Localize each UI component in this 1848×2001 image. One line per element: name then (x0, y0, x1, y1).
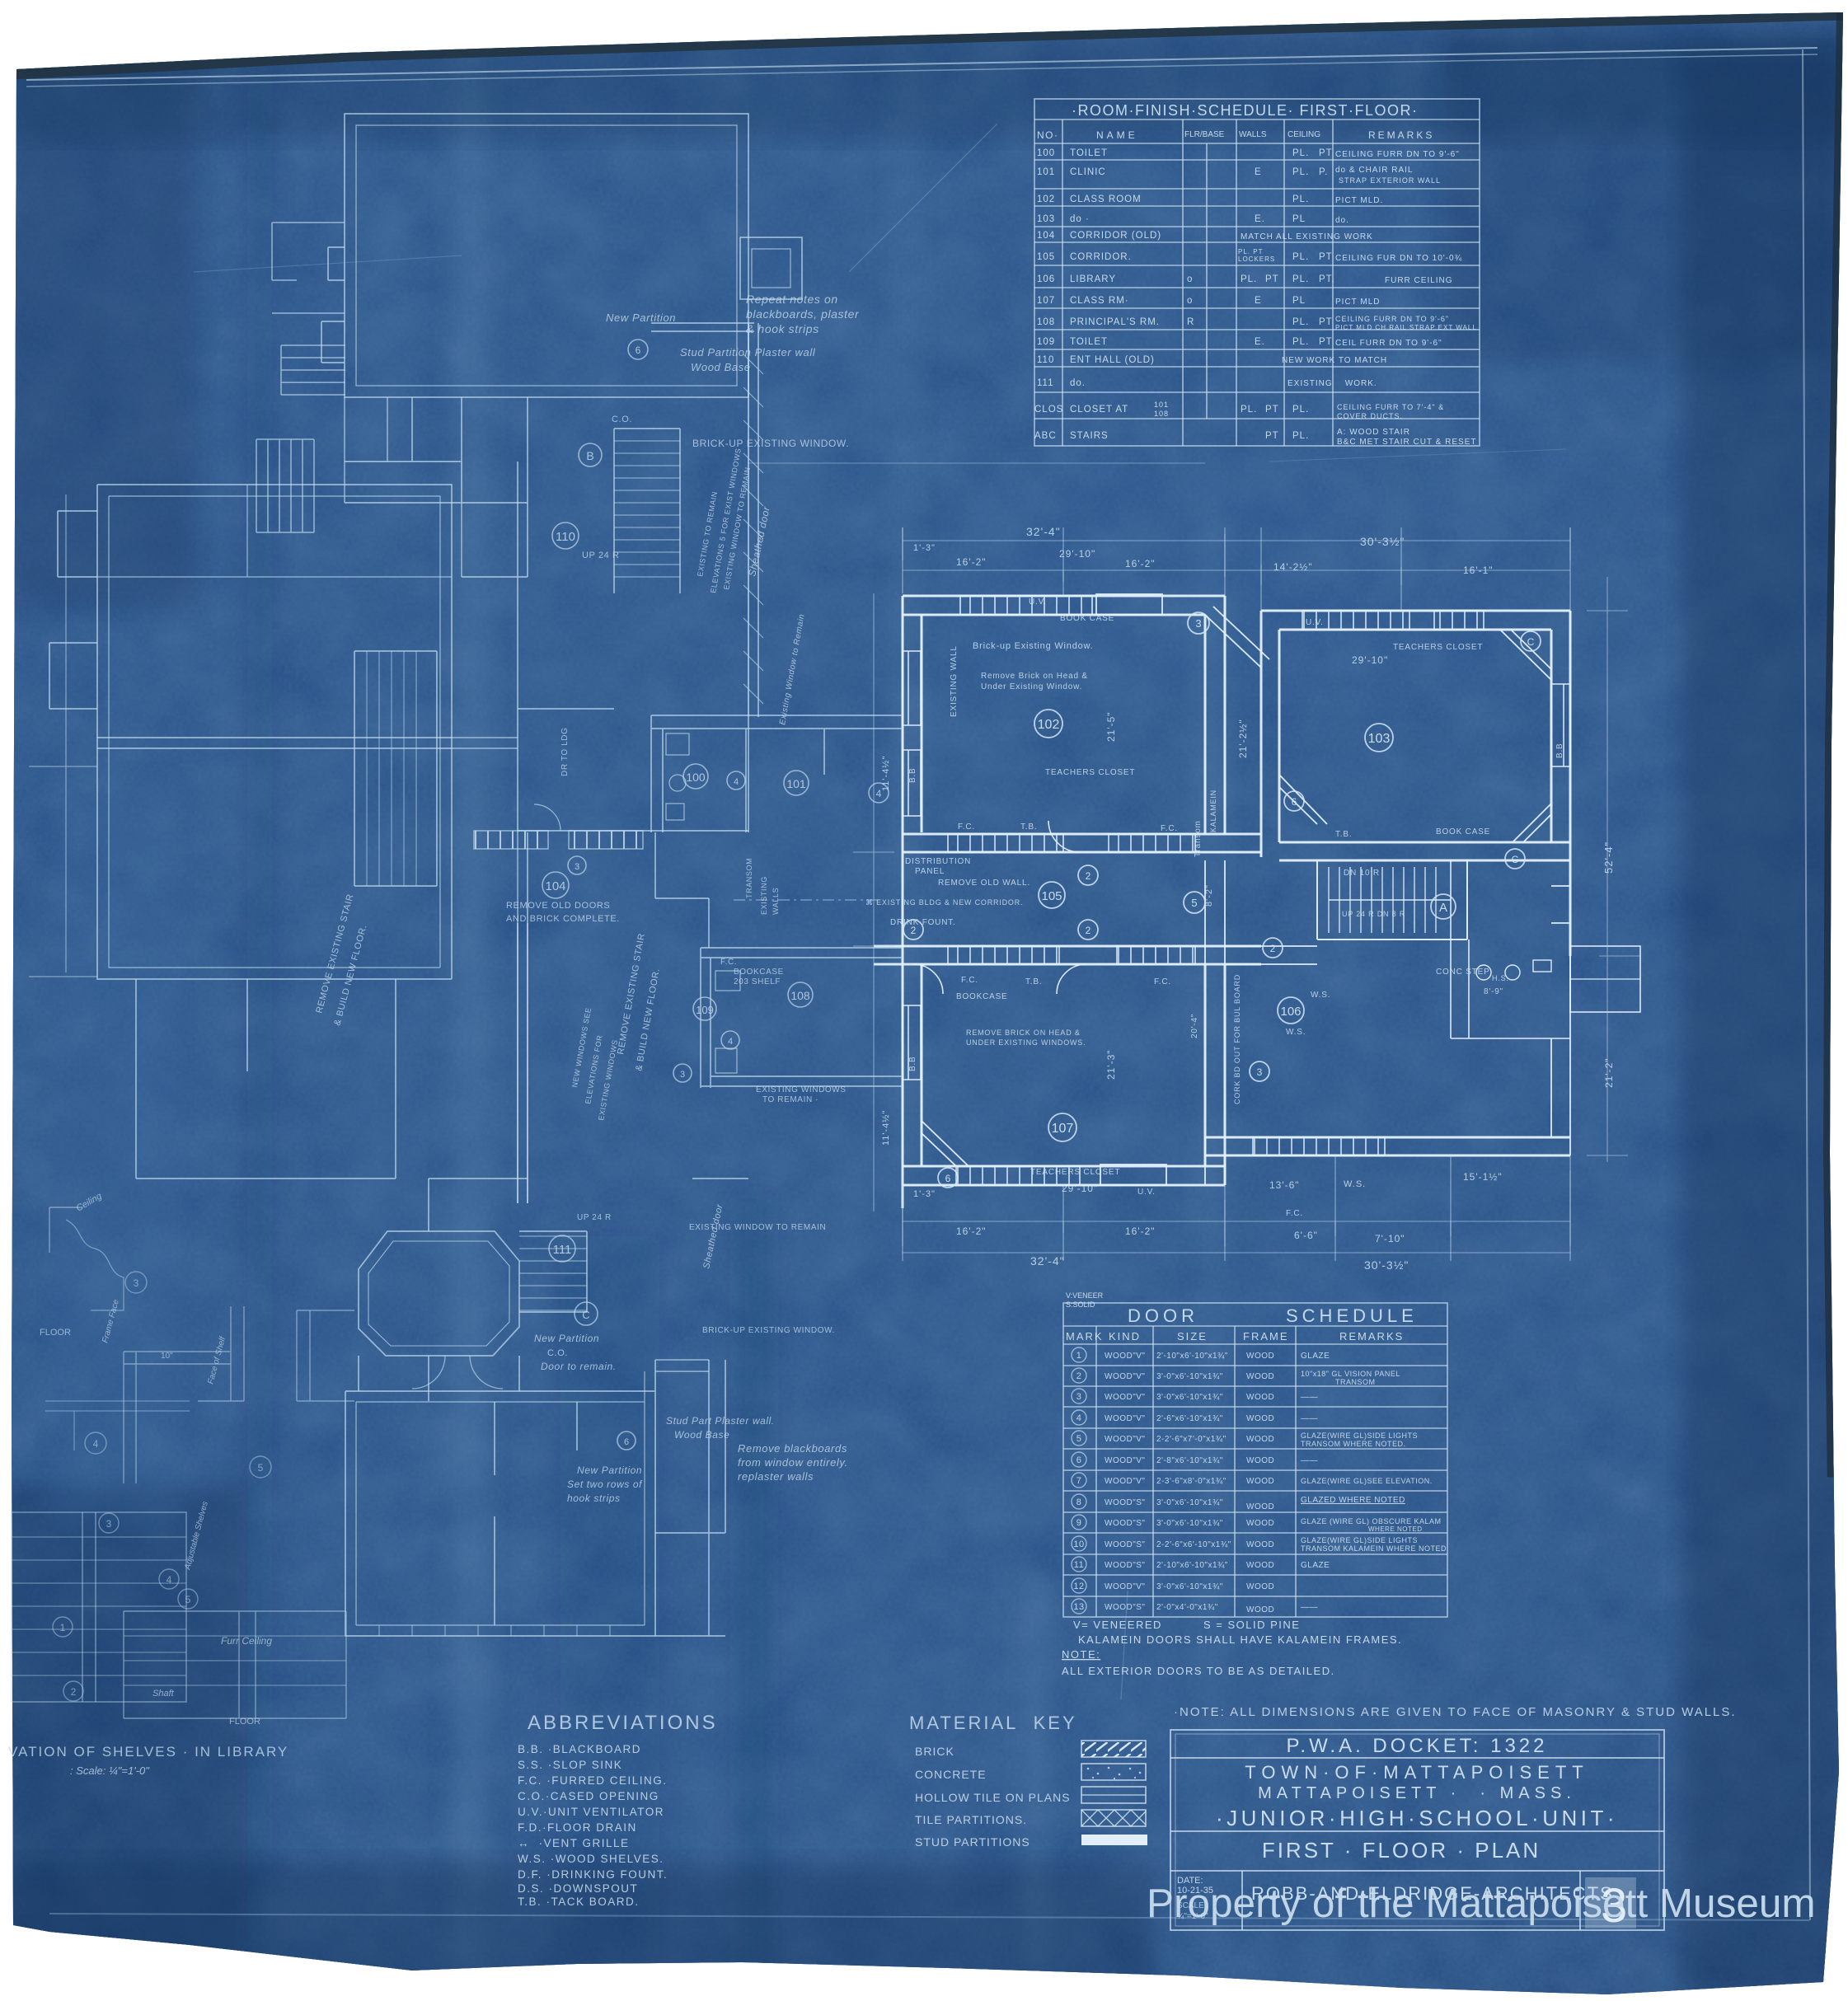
svg-text:E: E (1255, 167, 1262, 177)
svg-text:E: E (1255, 296, 1262, 306)
svg-text:H.S.: H.S. (1492, 974, 1509, 982)
svg-text:Stud Part Plaster wall.: Stud Part Plaster wall. (666, 1415, 775, 1427)
svg-text:LIBRARY: LIBRARY (1070, 274, 1116, 284)
svg-text:NOTE:: NOTE: (1062, 1648, 1100, 1661)
svg-text:PICT MLD CH RAIL STRAP EXT WAL: PICT MLD CH RAIL STRAP EXT WALL (1335, 324, 1477, 331)
svg-text:14'-2½": 14'-2½" (1273, 561, 1313, 573)
svg-text:W.S. ·WOOD SHELVES.: W.S. ·WOOD SHELVES. (518, 1853, 664, 1865)
svg-text:F.C.: F.C. (1154, 977, 1171, 986)
svg-text:CORRIDOR.: CORRIDOR. (1070, 252, 1132, 262)
svg-text:GLAZED WHERE NOTED: GLAZED WHERE NOTED (1301, 1496, 1405, 1505)
svg-text:4: 4 (93, 1438, 99, 1450)
svg-text:13: 13 (1073, 1602, 1084, 1612)
svg-text:2'-10"x6'-10"x1¾": 2'-10"x6'-10"x1¾" (1156, 1352, 1228, 1361)
svg-text:Wood Base: Wood Base (674, 1429, 729, 1441)
svg-text:6: 6 (1292, 796, 1297, 808)
svg-text:4: 4 (876, 788, 882, 799)
svg-text:WOOD: WOOD (1246, 1393, 1274, 1402)
svg-text:FURR CEILING: FURR CEILING (1385, 276, 1453, 285)
svg-text:PL.: PL. (1241, 274, 1257, 284)
svg-text:TEACHERS CLOSET: TEACHERS CLOSET (1393, 643, 1483, 652)
svg-text:20'-4": 20'-4" (1190, 1014, 1199, 1038)
svg-text:ABBREVIATIONS: ABBREVIATIONS (528, 1712, 718, 1734)
svg-text:PICT MLD: PICT MLD (1335, 298, 1381, 307)
svg-text:110: 110 (556, 530, 575, 544)
svg-text:V= VENEERED: V= VENEERED (1073, 1619, 1162, 1631)
svg-text:5: 5 (1076, 1434, 1082, 1444)
svg-text:D.S. ·DOWNSPOUT: D.S. ·DOWNSPOUT (518, 1882, 638, 1895)
svg-text:C: C (582, 1309, 589, 1321)
svg-text:Shaft: Shaft (152, 1689, 175, 1699)
svg-text:5: 5 (1191, 897, 1197, 909)
svg-text:↔ ·VENT GRILLE: ↔ ·VENT GRILLE (518, 1837, 630, 1849)
svg-text:: Scale: ¼"=1'-0": : Scale: ¼"=1'-0" (70, 1764, 150, 1777)
svg-text:5: 5 (185, 1594, 191, 1605)
svg-text:——: —— (1301, 1414, 1318, 1423)
svg-text:GLAZE(WIRE GL)SIDE LIGHTS: GLAZE(WIRE GL)SIDE LIGHTS (1301, 1432, 1418, 1440)
svg-text:B.B: B.B (1555, 743, 1564, 758)
svg-text:CLASS ROOM: CLASS ROOM (1070, 194, 1142, 204)
svg-text:E.: E. (1255, 214, 1265, 224)
svg-text:CONC STEP: CONC STEP (1436, 968, 1490, 977)
svg-text:ABC: ABC (1034, 431, 1057, 441)
svg-text:WOOD"S": WOOD"S" (1105, 1540, 1146, 1549)
svg-text:4: 4 (728, 1037, 733, 1047)
svg-text:6'-6": 6'-6" (1294, 1230, 1318, 1241)
svg-text:32'-4": 32'-4" (1026, 525, 1061, 538)
svg-text:——: —— (1301, 1603, 1318, 1612)
svg-text:8: 8 (1076, 1497, 1082, 1507)
svg-text:3'-0"x6'-10"x1¾": 3'-0"x6'-10"x1¾" (1156, 1519, 1223, 1528)
svg-text:B: B (586, 449, 593, 462)
svg-text:AND BRICK COMPLETE.: AND BRICK COMPLETE. (506, 914, 620, 924)
svg-text:STAIRS: STAIRS (1070, 431, 1109, 441)
svg-text:101: 101 (786, 777, 806, 790)
svg-text:PT: PT (1265, 274, 1279, 284)
svg-text:WOOD"V": WOOD"V" (1105, 1456, 1146, 1465)
svg-text:P.: P. (1319, 167, 1328, 177)
svg-text:2'-10"x6'-10"x1¾": 2'-10"x6'-10"x1¾" (1156, 1561, 1228, 1570)
svg-text:11: 11 (1074, 1560, 1084, 1570)
svg-text:TO REMAIN ·: TO REMAIN · (762, 1095, 818, 1104)
svg-text:F.C.: F.C. (961, 976, 978, 985)
svg-text:6: 6 (1076, 1455, 1082, 1465)
svg-text:PL.: PL. (1292, 337, 1309, 347)
svg-text:CEIL FURR DN TO 9'-6": CEIL FURR DN TO 9'-6" (1335, 339, 1442, 348)
svg-text:101: 101 (1037, 167, 1055, 177)
svg-text:1'-3": 1'-3" (913, 1189, 936, 1199)
svg-text:Under Existing Window.: Under Existing Window. (981, 682, 1082, 691)
svg-text:T.B.: T.B. (1335, 830, 1352, 839)
svg-text:9: 9 (1076, 1518, 1082, 1528)
svg-text:do.: do. (1335, 216, 1349, 225)
svg-text:104: 104 (545, 879, 565, 893)
svg-text:109: 109 (696, 1004, 714, 1016)
svg-text:16'-2": 16'-2" (1125, 558, 1156, 569)
svg-text:·ROOM·FINISH·SCHEDULE· FIRST·F: ·ROOM·FINISH·SCHEDULE· FIRST·FLOOR· (1072, 102, 1419, 119)
svg-text:12: 12 (1073, 1582, 1084, 1591)
svg-text:1: 1 (60, 1622, 66, 1633)
svg-text:F.C.: F.C. (720, 958, 737, 967)
svg-text:Brick-up Existing Window.: Brick-up Existing Window. (973, 641, 1094, 651)
svg-text:DRINK FOUNT.: DRINK FOUNT. (890, 918, 956, 927)
svg-text:111: 111 (1037, 378, 1053, 388)
svg-text:WOOD"S": WOOD"S" (1105, 1561, 1146, 1570)
svg-text:——: —— (1301, 1393, 1318, 1402)
svg-text:PL.: PL. (1292, 252, 1309, 262)
svg-text:U.V.·UNIT VENTILATOR: U.V.·UNIT VENTILATOR (518, 1806, 664, 1818)
svg-text:GLAZE(WIRE GL)SEE ELEVATION.: GLAZE(WIRE GL)SEE ELEVATION. (1301, 1477, 1433, 1485)
svg-text:SIZE: SIZE (1177, 1330, 1208, 1343)
svg-text:Stud Partition Plaster wall: Stud Partition Plaster wall (680, 346, 816, 358)
svg-text:B.B. ·BLACKBOARD: B.B. ·BLACKBOARD (518, 1743, 641, 1755)
svg-text:3: 3 (680, 1070, 685, 1080)
svg-text:21'-2½": 21'-2½" (1237, 719, 1249, 758)
svg-text:PRINCIPAL'S RM.: PRINCIPAL'S RM. (1070, 317, 1160, 327)
svg-text:PL.: PL. (1241, 405, 1257, 415)
svg-text:107: 107 (1037, 296, 1055, 306)
svg-text:C.O.·CASED OPENING: C.O.·CASED OPENING (518, 1790, 659, 1802)
svg-text:BOOK CASE: BOOK CASE (1060, 614, 1114, 623)
svg-text:21'-3": 21'-3" (1105, 1049, 1117, 1080)
svg-text:WOOD"V": WOOD"V" (1105, 1352, 1146, 1361)
svg-text:ENT HALL (OLD): ENT HALL (OLD) (1070, 355, 1155, 365)
svg-text:3: 3 (1257, 1066, 1263, 1078)
svg-text:4: 4 (1076, 1413, 1082, 1423)
svg-text:106: 106 (1037, 274, 1055, 284)
svg-text:A: A (1439, 901, 1447, 915)
svg-text:WALLS: WALLS (772, 888, 780, 915)
svg-text:KALAMEIN DOORS SHALL HAVE KALA: KALAMEIN DOORS SHALL HAVE KALAMEIN FRAME… (1078, 1633, 1402, 1646)
svg-text:21'-5": 21'-5" (1105, 711, 1117, 742)
svg-text:F.C.: F.C. (1286, 1209, 1303, 1218)
svg-text:13'-6": 13'-6" (1269, 1179, 1300, 1191)
svg-text:FIRST · FLOOR · PLAN: FIRST · FLOOR · PLAN (1262, 1838, 1541, 1863)
svg-text:WOOD: WOOD (1246, 1605, 1274, 1614)
svg-text:3: 3 (575, 862, 579, 872)
svg-text:& hook strips: & hook strips (746, 322, 819, 335)
svg-text:from window entirely.: from window entirely. (738, 1456, 848, 1469)
svg-text:2-3'-6"x8'-0"x1¾": 2-3'-6"x8'-0"x1¾" (1156, 1477, 1227, 1486)
svg-text:108: 108 (1154, 410, 1169, 418)
svg-text:103: 103 (1368, 732, 1391, 746)
svg-text:NAME: NAME (1096, 129, 1138, 141)
svg-text:R: R (1187, 317, 1194, 327)
svg-text:UP 24 R DN 8 R: UP 24 R DN 8 R (1342, 910, 1405, 918)
svg-text:101: 101 (1154, 401, 1169, 409)
svg-text:29'-10": 29'-10" (1352, 654, 1388, 666)
svg-text:PT.: PT. (1319, 274, 1335, 284)
svg-text:15'-1½": 15'-1½" (1463, 1171, 1503, 1183)
svg-text:10: 10 (1073, 1539, 1084, 1549)
svg-text:TRANSOM: TRANSOM (745, 858, 753, 898)
svg-text:CLOSET AT: CLOSET AT (1070, 405, 1128, 415)
svg-text:WOOD: WOOD (1246, 1352, 1274, 1361)
svg-text:PL.: PL. (1292, 431, 1309, 441)
svg-text:B.B: B.B (908, 1056, 917, 1071)
svg-text:CEILING FUR DN TO 10'-0¾: CEILING FUR DN TO 10'-0¾ (1335, 254, 1462, 263)
svg-text:WOOD: WOOD (1246, 1372, 1274, 1381)
svg-text:11'-4½": 11'-4½" (881, 1110, 891, 1146)
svg-text:32'-4": 32'-4" (1030, 1254, 1065, 1268)
svg-text:do & CHAIR RAIL: do & CHAIR RAIL (1335, 166, 1413, 175)
svg-text:TOILET: TOILET (1070, 337, 1108, 347)
svg-text:109: 109 (1037, 337, 1055, 347)
svg-text:⌘ EXISTING BLDG & NEW CORRIDO: ⌘ EXISTING BLDG & NEW CORRIDOR. (865, 898, 1023, 907)
svg-text:WOOD: WOOD (1246, 1477, 1274, 1486)
svg-text:MATTAPOISETT · · MASS.: MATTAPOISETT · · MASS. (1258, 1784, 1576, 1802)
svg-text:3: 3 (134, 1277, 139, 1289)
svg-text:PL: PL (1292, 214, 1306, 224)
svg-text:W.S.: W.S. (1286, 1028, 1306, 1037)
svg-text:PL: PL (1292, 296, 1306, 306)
svg-text:WOOD: WOOD (1246, 1561, 1274, 1570)
svg-text:o: o (1187, 296, 1193, 306)
svg-text:WALLS: WALLS (1239, 130, 1267, 139)
svg-text:WOOD: WOOD (1246, 1435, 1274, 1444)
svg-text:3'-0"x6'-10"x1¾": 3'-0"x6'-10"x1¾" (1156, 1498, 1223, 1507)
svg-text:WOOD"V": WOOD"V" (1105, 1372, 1146, 1381)
svg-text:V:VENEER: V:VENEER (1066, 1291, 1104, 1300)
svg-text:WOOD"V": WOOD"V" (1105, 1582, 1146, 1591)
svg-text:7: 7 (1076, 1476, 1082, 1486)
svg-text:DOOR: DOOR (1128, 1305, 1198, 1326)
svg-text:ALL EXTERIOR DOORS TO BE AS DE: ALL EXTERIOR DOORS TO BE AS DETAILED. (1062, 1665, 1335, 1677)
svg-text:WOOD"V": WOOD"V" (1105, 1435, 1146, 1444)
svg-text:8'-9": 8'-9" (1484, 987, 1503, 996)
svg-text:WHERE NOTED: WHERE NOTED (1368, 1525, 1423, 1533)
svg-text:New Partition: New Partition (534, 1333, 599, 1344)
svg-text:2: 2 (71, 1686, 77, 1698)
svg-text:WOOD: WOOD (1246, 1582, 1274, 1591)
svg-text:KIND: KIND (1109, 1330, 1141, 1343)
svg-text:WOOD"V": WOOD"V" (1105, 1477, 1146, 1486)
svg-text:DISTRIBUTION: DISTRIBUTION (905, 857, 971, 866)
svg-text:A: WOOD STAIR: A: WOOD STAIR (1337, 428, 1410, 437)
svg-text:Property of the Mattapoisett M: Property of the Mattapoisett Museum (1147, 1881, 1816, 1926)
svg-text:29'-10": 29'-10" (1062, 1183, 1098, 1194)
svg-text:2'-6"x6'-10"x1¾": 2'-6"x6'-10"x1¾" (1156, 1414, 1223, 1423)
svg-text:10"x18" GL VISION PANEL: 10"x18" GL VISION PANEL (1301, 1370, 1400, 1378)
svg-text:UNDER EXISTING WINDOWS.: UNDER EXISTING WINDOWS. (966, 1038, 1086, 1047)
svg-text:WOOD"S": WOOD"S" (1105, 1519, 1146, 1528)
svg-text:1'-3": 1'-3" (913, 543, 936, 553)
svg-text:UP 24 R: UP 24 R (577, 1213, 612, 1222)
svg-text:3: 3 (1076, 1392, 1082, 1402)
svg-text:103: 103 (1037, 214, 1055, 224)
svg-text:10": 10" (161, 1352, 173, 1361)
svg-text:PL. PT: PL. PT (1238, 248, 1263, 255)
svg-text:KALAMEIN: KALAMEIN (1209, 790, 1217, 832)
svg-text:D.F. ·DRINKING FOUNT.: D.F. ·DRINKING FOUNT. (518, 1868, 668, 1881)
svg-text:F.C. ·FURRED CEILING.: F.C. ·FURRED CEILING. (518, 1774, 668, 1787)
svg-text:107: 107 (1052, 1122, 1074, 1136)
svg-text:4: 4 (167, 1574, 172, 1586)
svg-text:NEW WORK TO MATCH: NEW WORK TO MATCH (1282, 356, 1387, 365)
svg-text:3: 3 (106, 1518, 112, 1530)
svg-text:EXISTING WALL: EXISTING WALL (950, 645, 959, 717)
svg-text:REMARKS: REMARKS (1368, 129, 1434, 141)
svg-text:105: 105 (1041, 889, 1062, 903)
svg-text:FLOOR: FLOOR (40, 1328, 71, 1338)
svg-text:16'-1": 16'-1" (1463, 565, 1494, 576)
svg-text:TRANSOM: TRANSOM (1335, 1378, 1376, 1386)
svg-text:21'-2": 21'-2" (1603, 1057, 1615, 1088)
svg-text:T.B. ·TACK BOARD.: T.B. ·TACK BOARD. (518, 1896, 640, 1908)
svg-text:WOOD"V": WOOD"V" (1105, 1393, 1146, 1402)
svg-text:C: C (1527, 636, 1535, 648)
svg-text:REMOVE BRICK ON HEAD &: REMOVE BRICK ON HEAD & (966, 1029, 1081, 1037)
svg-text:5: 5 (258, 1462, 264, 1474)
svg-text:PICT MLD.: PICT MLD. (1335, 196, 1383, 205)
svg-text:106: 106 (1280, 1005, 1301, 1019)
svg-text:BRICK-UP EXISTING WINDOW.: BRICK-UP EXISTING WINDOW. (702, 1326, 835, 1335)
svg-text:U.V.: U.V. (1306, 618, 1324, 627)
svg-text:100: 100 (686, 771, 706, 784)
svg-text:T.B.: T.B. (1020, 822, 1037, 832)
svg-text:S = SOLID PINE: S = SOLID PINE (1203, 1619, 1300, 1631)
svg-text:2-2'-6"x6'-10"x1¾": 2-2'-6"x6'-10"x1¾" (1156, 1540, 1231, 1549)
svg-text:Wood Base: Wood Base (691, 361, 751, 373)
svg-text:F.C.: F.C. (958, 822, 975, 832)
svg-text:2: 2 (1086, 870, 1091, 882)
svg-text:B.B: B.B (908, 767, 917, 783)
svg-text:HOLLOW TILE ON PLANS: HOLLOW TILE ON PLANS (915, 1791, 1071, 1804)
svg-text:F.C.: F.C. (1161, 824, 1178, 833)
svg-text:16'-2": 16'-2" (956, 556, 987, 568)
svg-text:WOOD"S": WOOD"S" (1105, 1603, 1146, 1612)
svg-text:W.S.: W.S. (1311, 991, 1330, 1000)
svg-text:16'-2": 16'-2" (956, 1225, 987, 1237)
svg-text:TILE PARTITIONS.: TILE PARTITIONS. (915, 1813, 1027, 1826)
svg-text:2'-0"x4'-0"x1¾": 2'-0"x4'-0"x1¾" (1156, 1603, 1218, 1612)
svg-text:LOCKERS: LOCKERS (1238, 255, 1275, 263)
svg-text:CEILING: CEILING (1288, 130, 1320, 139)
svg-text:F.D.·FLOOR DRAIN: F.D.·FLOOR DRAIN (518, 1821, 637, 1834)
svg-text:3'-0"x6'-10"x1¾": 3'-0"x6'-10"x1¾" (1156, 1393, 1223, 1402)
svg-text:COVER DUCTS.: COVER DUCTS. (1337, 412, 1403, 420)
svg-text:2: 2 (1076, 1371, 1082, 1381)
svg-text:E.: E. (1255, 337, 1265, 347)
svg-text:REMOVE OLD DOORS: REMOVE OLD DOORS (506, 901, 610, 911)
svg-text:6: 6 (945, 1173, 951, 1184)
svg-text:WOOD"S": WOOD"S" (1105, 1498, 1146, 1507)
svg-text:REMOVE OLD WALL.: REMOVE OLD WALL. (938, 879, 1030, 888)
svg-text:GLAZE(WIRE GL)SIDE LIGHTS: GLAZE(WIRE GL)SIDE LIGHTS (1301, 1536, 1418, 1544)
svg-text:replaster walls: replaster walls (738, 1470, 814, 1483)
svg-text:Repeat notes on: Repeat notes on (746, 293, 838, 306)
svg-text:EXISTING WORK.: EXISTING WORK. (1288, 379, 1377, 388)
svg-text:TOILET: TOILET (1070, 148, 1108, 158)
svg-text:P.W.A. DOCKET: 1322: P.W.A. DOCKET: 1322 (1287, 1735, 1548, 1757)
svg-text:4: 4 (734, 777, 739, 787)
svg-text:BOOKCASE: BOOKCASE (734, 968, 784, 977)
svg-text:hook strips: hook strips (567, 1493, 621, 1504)
svg-text:108: 108 (790, 989, 810, 1002)
svg-text:PT: PT (1319, 317, 1333, 327)
svg-text:CONCRETE: CONCRETE (915, 1768, 987, 1781)
svg-text:PT: PT (1319, 337, 1333, 347)
svg-text:CLASS RM·: CLASS RM· (1070, 296, 1129, 306)
svg-text:100: 100 (1037, 148, 1055, 158)
svg-text:C: C (1512, 854, 1519, 865)
svg-text:B&C MET STAIR CUT & RESET: B&C MET STAIR CUT & RESET (1337, 438, 1476, 447)
svg-text:·JUNIOR·HIGH·SCHOOL·UNIT·: ·JUNIOR·HIGH·SCHOOL·UNIT· (1216, 1806, 1618, 1830)
svg-text:16'-2": 16'-2" (1125, 1225, 1156, 1237)
svg-text:do.: do. (1070, 378, 1086, 388)
svg-text:New Partition: New Partition (606, 312, 676, 324)
svg-text:UP 24 R: UP 24 R (582, 551, 620, 560)
svg-text:102: 102 (1037, 194, 1055, 204)
svg-text:3'-0"x6'-10"x1¾": 3'-0"x6'-10"x1¾" (1156, 1372, 1223, 1381)
svg-text:108: 108 (1037, 317, 1055, 327)
svg-text:CLOS: CLOS (1034, 405, 1063, 415)
svg-text:CORK BD OUT FOR BUL BOARD: CORK BD OUT FOR BUL BOARD (1233, 974, 1241, 1104)
svg-text:BOOK CASE: BOOK CASE (1436, 827, 1490, 836)
svg-text:do ·: do · (1070, 214, 1090, 224)
svg-text:STUD PARTITIONS: STUD PARTITIONS (915, 1835, 1030, 1849)
svg-text:7'-10": 7'-10" (1375, 1233, 1405, 1244)
svg-text:2: 2 (1086, 925, 1091, 936)
svg-text:PT: PT (1265, 405, 1279, 415)
svg-text:Remove blackboards: Remove blackboards (738, 1442, 847, 1455)
svg-text:PT: PT (1319, 148, 1333, 158)
svg-text:CORRIDOR (OLD): CORRIDOR (OLD) (1070, 231, 1161, 241)
svg-text:2-2'-6"x7'-0"x1¾": 2-2'-6"x7'-0"x1¾" (1156, 1435, 1227, 1444)
svg-text:New Partition: New Partition (577, 1464, 642, 1476)
svg-text:GLAZE: GLAZE (1301, 1352, 1330, 1361)
svg-text:EXISTING WINDOWS: EXISTING WINDOWS (756, 1085, 847, 1094)
svg-text:BOOKCASE: BOOKCASE (956, 992, 1008, 1001)
svg-text:WOOD: WOOD (1246, 1502, 1274, 1511)
svg-text:SCHEDULE: SCHEDULE (1286, 1305, 1418, 1326)
svg-text:PL.: PL. (1292, 274, 1309, 284)
svg-text:CEILING FURR DN TO 9'-6": CEILING FURR DN TO 9'-6" (1335, 150, 1460, 159)
svg-text:6: 6 (624, 1437, 629, 1447)
svg-text:PL.: PL. (1292, 167, 1309, 177)
svg-text:203 SHELF: 203 SHELF (734, 977, 781, 986)
svg-text:REMARKS: REMARKS (1339, 1330, 1404, 1343)
svg-text:DN 10 R: DN 10 R (1344, 869, 1380, 878)
svg-text:1: 1 (1076, 1351, 1082, 1361)
svg-text:Door to remain.: Door to remain. (541, 1361, 617, 1372)
svg-text:PT: PT (1265, 431, 1279, 441)
svg-text:111: 111 (553, 1243, 572, 1257)
svg-text:30'-3½": 30'-3½" (1360, 535, 1405, 548)
svg-text:PL.: PL. (1292, 148, 1309, 158)
svg-text:52'-4": 52'-4" (1602, 841, 1615, 874)
svg-text:FRAME: FRAME (1243, 1330, 1289, 1343)
svg-text:2: 2 (1270, 943, 1276, 954)
svg-text:104: 104 (1037, 231, 1055, 241)
svg-text:FLR/BASE: FLR/BASE (1184, 130, 1225, 139)
svg-text:PL.: PL. (1292, 194, 1309, 204)
svg-text:3: 3 (1195, 617, 1201, 630)
svg-text:3'-0"x6'-10"x1¾": 3'-0"x6'-10"x1¾" (1156, 1582, 1223, 1591)
svg-text:PL.: PL. (1292, 317, 1309, 327)
svg-text:PT: PT (1319, 252, 1333, 262)
svg-text:BRICK-UP EXISTING WINDOW.: BRICK-UP EXISTING WINDOW. (692, 438, 849, 449)
svg-text:W.S.: W.S. (1344, 1179, 1366, 1189)
svg-text:S.S. ·SLOP SINK: S.S. ·SLOP SINK (518, 1759, 622, 1771)
svg-text:CLINIC: CLINIC (1070, 167, 1106, 177)
svg-text:Transom: Transom (1194, 820, 1203, 857)
svg-text:U.V.: U.V. (1029, 597, 1047, 607)
svg-text:Set two rows of: Set two rows of (567, 1478, 643, 1490)
svg-text:2'-8"x6'-10"x1¾": 2'-8"x6'-10"x1¾" (1156, 1456, 1223, 1465)
svg-text:PANEL: PANEL (915, 867, 945, 876)
svg-text:110: 110 (1037, 355, 1054, 365)
